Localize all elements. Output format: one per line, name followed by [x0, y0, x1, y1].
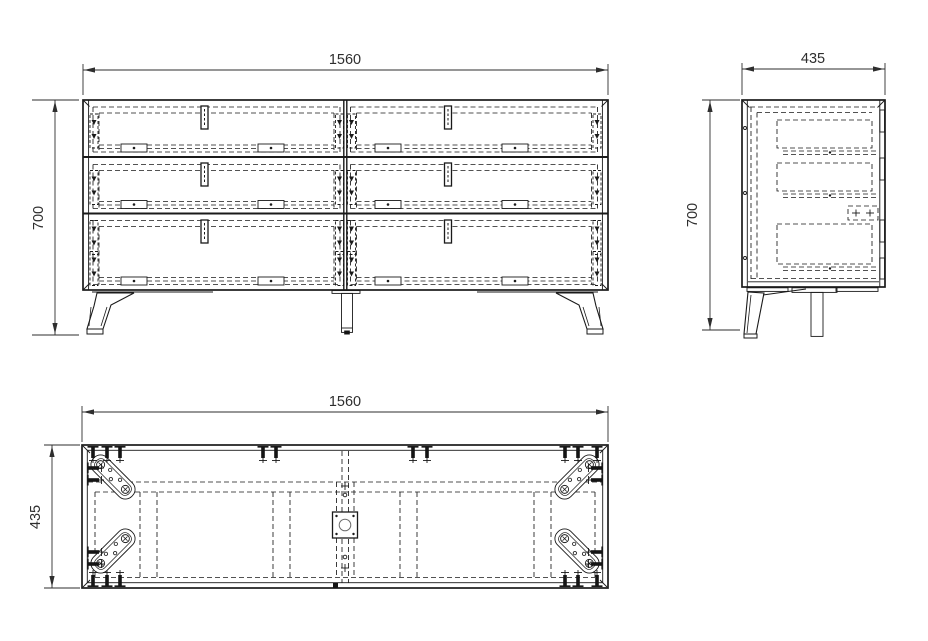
- front-drawer-cells: [90, 106, 601, 286]
- front-center-leg: [332, 291, 360, 335]
- drawer-handle-plate: [201, 106, 208, 129]
- slide-hardware: [258, 277, 284, 285]
- front-width-label: 1560: [329, 52, 361, 68]
- plan-view: 1560 435: [28, 394, 608, 588]
- plan-width-label: 1560: [329, 394, 361, 410]
- slide-hardware: [258, 144, 284, 152]
- drawer-handle-plate: [445, 106, 452, 129]
- slide-hardware: [121, 144, 147, 152]
- side-width-label: 435: [801, 51, 825, 67]
- drawer-cell: [348, 221, 602, 286]
- drawer-handle-plate: [201, 163, 208, 186]
- side-height-label: 700: [685, 203, 701, 227]
- drawer-handle-plate: [201, 220, 208, 243]
- side-height-dimension: 700: [685, 100, 740, 330]
- slide-hardware: [375, 201, 401, 209]
- cam-fitting: [848, 206, 878, 220]
- drawer-cell: [90, 221, 344, 286]
- slide-hardware: [375, 277, 401, 285]
- front-right-leg: [556, 293, 603, 334]
- drawer-handle-plate: [445, 220, 452, 243]
- technical-drawing-page: 1560 700: [0, 0, 928, 641]
- side-carcass: [742, 100, 885, 287]
- plan-depth-label: 435: [28, 505, 44, 529]
- technical-drawing-canvas: 1560 700: [0, 0, 928, 641]
- side-legs: [744, 288, 928, 338]
- front-view: 1560 700: [31, 52, 608, 335]
- side-view: 435 700: [685, 51, 928, 338]
- front-height-label: 700: [31, 206, 47, 230]
- slide-hardware: [502, 201, 528, 209]
- plan-center-joint-mark: [333, 583, 338, 588]
- slide-hardware: [375, 144, 401, 152]
- side-center-leg: [811, 292, 823, 336]
- side-width-dimension: 435: [742, 51, 885, 95]
- slide-hardware: [502, 277, 528, 285]
- front-height-dimension: 700: [31, 100, 79, 335]
- front-width-dimension: 1560: [83, 52, 608, 95]
- slide-hardware: [121, 277, 147, 285]
- front-left-leg: [87, 293, 134, 334]
- plan-depth-dimension: 435: [28, 445, 80, 588]
- side-drawer-profiles: [777, 120, 878, 271]
- side-front-leg: [744, 289, 806, 338]
- front-legs: [87, 291, 603, 335]
- front-carcass: [83, 100, 608, 290]
- plan-width-dimension: 1560: [82, 394, 608, 442]
- plan-center-leg-plate: [333, 512, 358, 538]
- drawer-handle-plate: [445, 163, 452, 186]
- slide-hardware: [502, 144, 528, 152]
- slide-hardware: [121, 201, 147, 209]
- slide-hardware: [258, 201, 284, 209]
